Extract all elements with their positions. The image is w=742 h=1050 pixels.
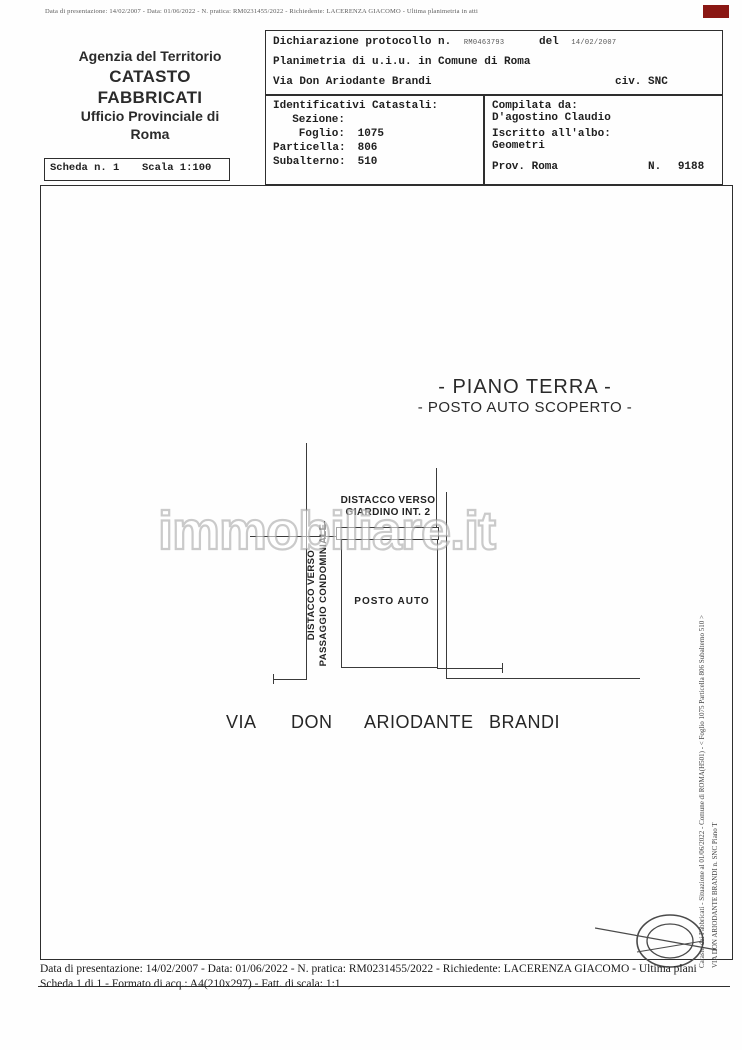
identifiers-sezione-row: Sezione: <box>273 114 351 126</box>
footer-line2: Scheda 1 di 1 - Formato di acq.: A4(210x… <box>40 978 341 990</box>
foglio-label: Foglio: <box>273 128 345 140</box>
plan-title: - PIANO TERRA - <box>438 376 612 399</box>
foglio-value: 1075 <box>358 128 384 140</box>
plan-frame <box>40 185 733 960</box>
agency-line3: Ufficio Provinciale di <box>60 108 240 126</box>
street-word-don: DON <box>291 712 333 733</box>
declaration-civic: civ. SNC <box>615 76 668 88</box>
right-margin-inner: VIA DON ARIODANTE BRANDI n. SNC Piano T <box>709 583 722 968</box>
document-page: Data di presentazione: 14/02/2007 - Data… <box>0 0 742 1050</box>
extension-tick <box>502 663 503 673</box>
declaration-line2: Planimetria di u.i.u. in Comune di Roma <box>273 56 530 68</box>
compiler-register: Geometri <box>492 140 545 152</box>
declaration-street: Via Don Ariodante Brandi <box>273 76 431 88</box>
agency-header: Agenzia del Territorio CATASTO FABBRICAT… <box>60 48 240 143</box>
compiler-title: Compilata da: <box>492 100 578 112</box>
sezione-label: Sezione: <box>273 114 345 126</box>
subalterno-value: 510 <box>358 156 378 168</box>
protocol-number: RM0463793 <box>464 39 505 47</box>
footer-line1: Data di presentazione: 14/02/2007 - Data… <box>40 963 697 975</box>
right-margin-outer: Catasto dei Fabbricati - Situazione al 0… <box>696 583 709 968</box>
protocol-date: 14/02/2007 <box>571 39 616 47</box>
compiler-prov: Prov. Roma <box>492 161 558 173</box>
scheda-scale: Scala 1:100 <box>142 162 211 174</box>
identifiers-foglio-row: Foglio: 1075 <box>273 128 384 140</box>
street-word-ariodante: ARIODANTE <box>364 712 474 733</box>
declaration-protocol-row: Dichiarazione protocollo n. RM0463793 de… <box>273 36 616 48</box>
particella-label: Particella: <box>273 142 345 154</box>
room-label: POSTO AUTO <box>354 596 429 608</box>
boundary-line-bottom-right <box>446 678 640 679</box>
immobiliare-watermark: immobiliare.it <box>158 500 495 562</box>
identifiers-subalterno-row: Subalterno: 510 <box>273 156 377 168</box>
protocol-label: Dichiarazione protocollo n. <box>273 36 451 48</box>
identifiers-particella-row: Particella: 806 <box>273 142 377 154</box>
scheda-label: Scheda n. 1 <box>50 162 119 174</box>
particella-value: 806 <box>358 142 378 154</box>
top-microprint: Data di presentazione: 14/02/2007 - Data… <box>45 8 478 15</box>
red-corner-mark <box>703 5 729 18</box>
number-value: 9188 <box>678 161 704 173</box>
agency-line2: CATASTO FABBRICATI <box>60 66 240 109</box>
boundary-tick-end <box>273 674 274 684</box>
street-word-via: VIA <box>226 712 257 733</box>
subalterno-label: Subalterno: <box>273 156 345 168</box>
compiler-name: D'agostino Claudio <box>492 112 611 124</box>
del-label: del <box>539 36 559 48</box>
compiler-register-label: Iscritto all'albo: <box>492 128 611 140</box>
identifiers-title: Identificativi Catastali: <box>273 100 438 112</box>
agency-line4: Roma <box>60 126 240 144</box>
plan-subtitle: - POSTO AUTO SCOPERTO - <box>418 399 633 416</box>
footer-strike-line <box>38 986 730 987</box>
compiler-number-row: N. 9188 <box>648 161 704 173</box>
boundary-tick-bottom-left <box>273 679 307 680</box>
agency-line1: Agenzia del Territorio <box>60 48 240 66</box>
parking-bottom-edge <box>341 667 438 668</box>
right-margin-caption: Catasto dei Fabbricati - Situazione al 0… <box>696 583 722 968</box>
street-word-brandi: BRANDI <box>489 712 560 733</box>
number-label: N. <box>648 161 661 173</box>
